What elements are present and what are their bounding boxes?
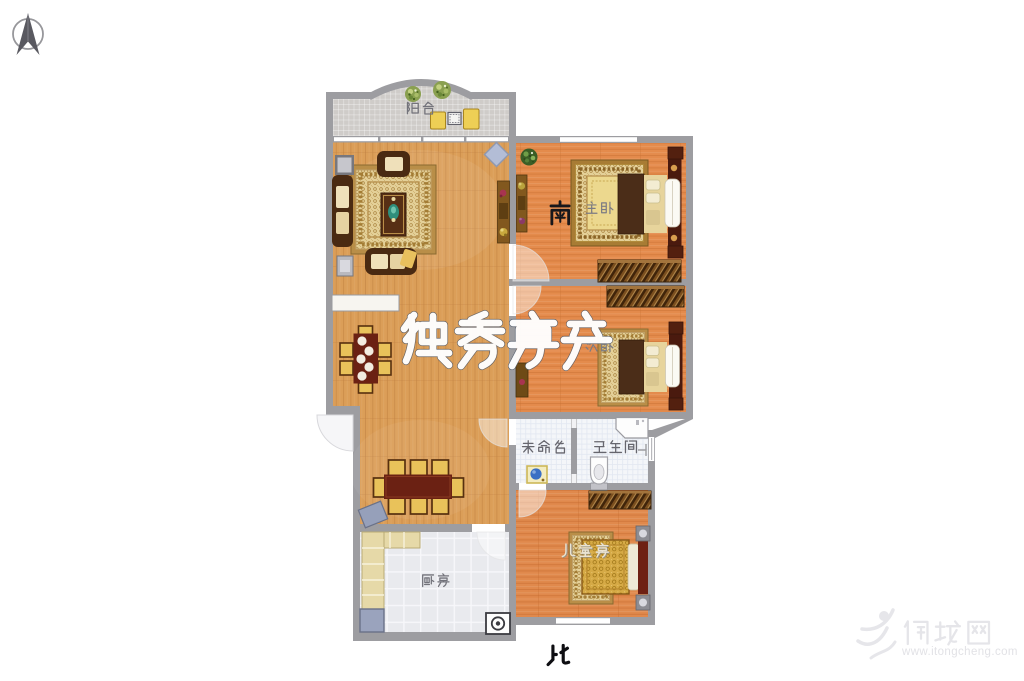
svg-text:www.itongcheng.com: www.itongcheng.com [901, 646, 1018, 658]
